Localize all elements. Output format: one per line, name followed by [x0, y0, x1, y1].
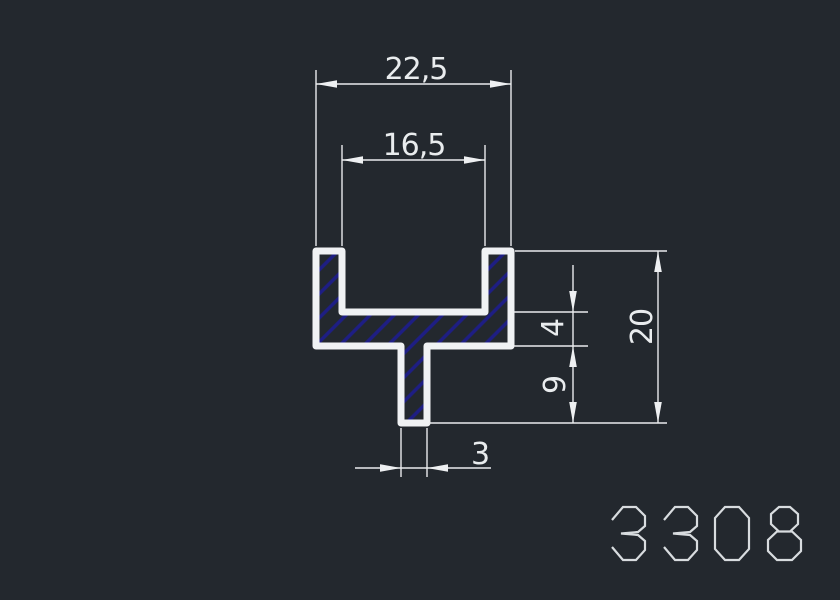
dimension-label-web-thickness: 4 [536, 319, 571, 337]
dimension-label-stem-width: 3 [471, 437, 489, 472]
dimension-label-total-height: 20 [625, 309, 660, 345]
dimension-label-outer-width: 22,5 [385, 52, 448, 87]
dimension-label-inner-width: 16,5 [383, 128, 446, 163]
drawing-background [0, 0, 840, 600]
cad-drawing-canvas: 22,5 16,5 4 9 20 3 [0, 0, 840, 600]
dimension-label-stem-depth: 9 [538, 376, 573, 394]
